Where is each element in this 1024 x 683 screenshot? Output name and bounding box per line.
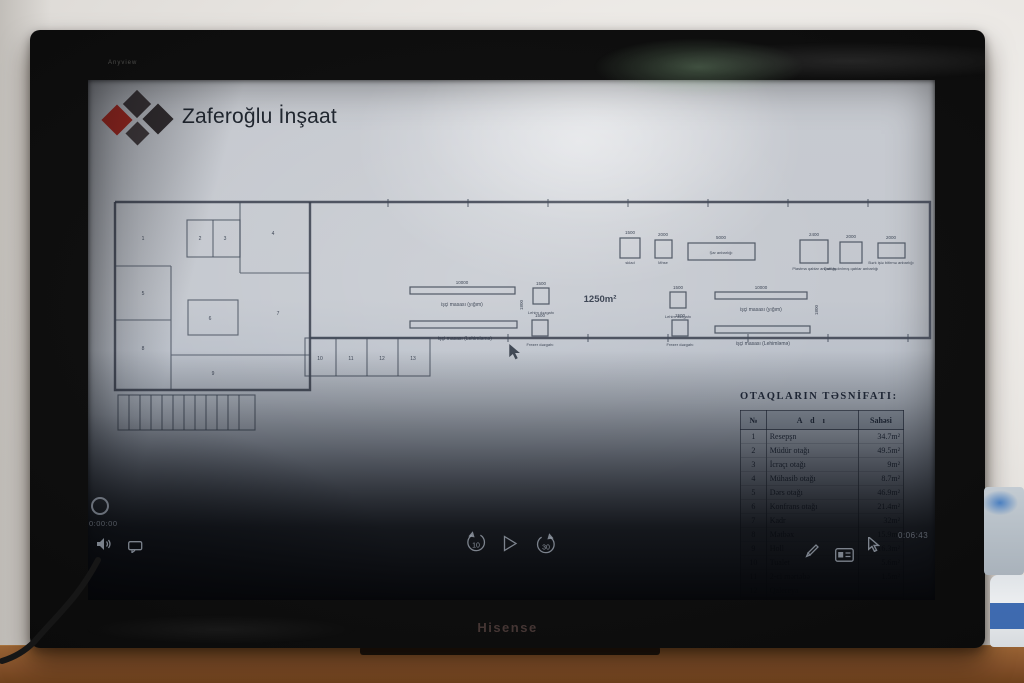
table-cell-name: İcraçı otağı (766, 458, 858, 472)
table-cell-no: 10 (741, 556, 767, 570)
dim-label: 1800 (519, 299, 524, 310)
table-cell-area: 34.7m² (858, 430, 903, 444)
table-cell-name: Mətbəx (766, 528, 858, 542)
plan-furniture (410, 238, 905, 336)
room-number: 3 (224, 236, 227, 242)
bottle (990, 575, 1024, 647)
table-cell-no: 4 (741, 472, 767, 486)
annotate-pencil-icon[interactable] (804, 541, 821, 558)
table-row: 7 Kadr 32m² (741, 514, 904, 528)
table-row: 5 Dərs otağı 46.9m² (741, 486, 904, 500)
machine-label: Frezer dəzgahı (527, 342, 554, 347)
tv-screen: Zaferoğlu İnşaat (88, 80, 935, 600)
table-cell-name: Mühasib otağı (766, 472, 858, 486)
dim-label: 2000 (886, 235, 897, 240)
table-cell-name: Resepşn (766, 430, 858, 444)
forward-30-button[interactable]: 30 (534, 532, 558, 556)
storage-label: Qablaşdırılmış qablar anbarlığı (824, 266, 879, 271)
dim-label: 2000 (658, 232, 669, 237)
table-cell-no: 6 (741, 500, 767, 514)
table-cell-no: 12 (741, 584, 767, 598)
plan-labels: 1250m² işçi masası (yığım) işçi masası (… (438, 250, 914, 347)
play-button[interactable] (502, 535, 518, 552)
dim-label: 2400 (809, 232, 820, 237)
tissue-box (984, 487, 1024, 575)
dim-label: 10000 (755, 285, 768, 290)
room-number: 13 (410, 356, 416, 362)
room-number: 7 (277, 311, 280, 317)
table-row: 13 (741, 598, 904, 601)
dim-label: 1500 (673, 285, 684, 290)
room-number: 9 (212, 371, 215, 377)
company-logo (104, 92, 174, 154)
desk-label: işçi masası (Lehimləmə) (736, 341, 790, 347)
forward-seconds: 30 (542, 545, 550, 552)
rooms-table-title: OTAQLARIN TƏSNİFATI: (740, 391, 910, 402)
table-row: 12 Qalereya (741, 584, 904, 598)
table-cell-no: 3 (741, 458, 767, 472)
table-cell-no: 9 (741, 542, 767, 556)
company-title: Zaferoğlu İnşaat (182, 105, 337, 129)
power-cable (0, 540, 200, 682)
plan-dimensions: 10000 10000 1500 1500 1500 1500 2400 200… (456, 230, 897, 318)
room-number: 6 (209, 316, 212, 322)
desk-label: işçi masası (yığım) (441, 302, 483, 308)
room-number: 4 (272, 231, 275, 237)
table-cell-name (766, 598, 858, 601)
dim-label: 2000 (846, 234, 857, 239)
table-row: 6 Konfrans otağı 21.4m² (741, 500, 904, 514)
storage-label: Şar anbarlığı (710, 250, 733, 255)
table-cell-area: 5.6m² (858, 556, 903, 570)
plan-walls (115, 199, 930, 390)
pointer-tool-icon[interactable] (868, 537, 880, 552)
rooms-table-header: № A d ı Sahəsi (741, 411, 904, 430)
dim-label: 1500 (536, 281, 547, 286)
table-cell-name: 2-ci mərtəbə (766, 570, 858, 584)
column-header-name: A d ı (766, 411, 858, 430)
column-header-no: № (741, 411, 767, 430)
table-row: 10 Tualet 5.6m² (741, 556, 904, 570)
rewind-10-button[interactable]: 10 (464, 530, 488, 554)
table-cell-no: 8 (741, 528, 767, 542)
table-row: 1 Resepşn 34.7m² (741, 430, 904, 444)
storage-label: Mhse (658, 260, 669, 265)
table-cell-area: 16.3m² (858, 542, 903, 556)
table-row: 11 2-ci mərtəbə 1.5m² (741, 570, 904, 584)
dim-label: 5000 (716, 235, 727, 240)
table-cell-no: 11 (741, 570, 767, 584)
notes-card-icon[interactable] (835, 548, 854, 562)
room-number: 11 (348, 356, 353, 362)
table-cell-area: 32m² (858, 514, 903, 528)
room-number: 12 (379, 356, 385, 362)
plan-stairs (118, 395, 255, 430)
storage-label: Bərk işlə bitirmə anbarlığı (868, 260, 913, 265)
logo-diamond-bottom (125, 121, 149, 145)
dim-label: 10000 (456, 280, 469, 285)
area-label: 1250m² (584, 294, 617, 305)
table-cell-area: 1.5m² (858, 570, 903, 584)
table-cell-no: 1 (741, 430, 767, 444)
table-row: 3 İcraçı otağı 9m² (741, 458, 904, 472)
dim-label: 1500 (625, 230, 636, 235)
table-row: 4 Mühasib otağı 8.7m² (741, 472, 904, 486)
desk-label: işçi masası (yığım) (740, 307, 782, 313)
table-cell-area (858, 598, 903, 601)
table-cell-area: 21.4m² (858, 500, 903, 514)
rewind-seconds: 10 (472, 543, 480, 550)
table-cell-name: Müdür otağı (766, 444, 858, 458)
machine-label: Frezer dəzgahı (667, 342, 694, 347)
rooms-table-body: 1 Resepşn 34.7m² 2 Müdür otağı 49.5m² (741, 430, 904, 601)
table-cell-no: 7 (741, 514, 767, 528)
bottle-label (990, 603, 1024, 629)
desk-label: işçi masası (Lehimləmə) (438, 336, 492, 342)
dim-label: 1800 (814, 304, 819, 315)
table-cell-area: 8.7m² (858, 472, 903, 486)
scene: Anyview Zaferoğlu İnşaat (0, 0, 1024, 682)
table-cell-name: Konfrans otağı (766, 500, 858, 514)
table-cell-area (858, 584, 903, 598)
rooms-table: OTAQLARIN TƏSNİFATI: № A d ı Sahəsi (740, 391, 910, 600)
table-row: 2 Müdür otağı 49.5m² (741, 444, 904, 458)
dim-label: 1500 (675, 313, 686, 318)
table-cell-area: 9m² (858, 458, 903, 472)
table-cell-no: 2 (741, 444, 767, 458)
room-number: 10 (317, 356, 323, 362)
room-number: 1 (142, 236, 145, 242)
bezel-model-label: Anyview (108, 60, 137, 66)
table-cell-area: 46.9m² (858, 486, 903, 500)
table-cell-no: 13 (741, 598, 767, 601)
room-number: 5 (142, 291, 145, 297)
rooms-table-grid: № A d ı Sahəsi 1 Resepşn 34.7m² (740, 410, 904, 600)
logo-diamond-right (142, 103, 173, 134)
table-cell-area: 15.9m² (858, 528, 903, 542)
buffering-circle-icon[interactable] (91, 497, 109, 515)
table-cell-name: Dərs otağı (766, 486, 858, 500)
duration-time: 0:06:43 (898, 531, 928, 540)
table-cell-name: Qalereya (766, 584, 858, 598)
table-cell-no: 5 (741, 486, 767, 500)
table-cell-area: 49.5m² (858, 444, 903, 458)
storage-label: sklad (625, 260, 634, 265)
elapsed-time: 0:00:00 (89, 519, 118, 528)
table-cell-name: Kadr (766, 514, 858, 528)
mouse-cursor-icon (509, 344, 521, 360)
room-number: 2 (199, 236, 202, 242)
room-number: 8 (142, 346, 145, 352)
column-header-area: Sahəsi (858, 411, 903, 430)
dim-label: 1500 (535, 313, 546, 318)
